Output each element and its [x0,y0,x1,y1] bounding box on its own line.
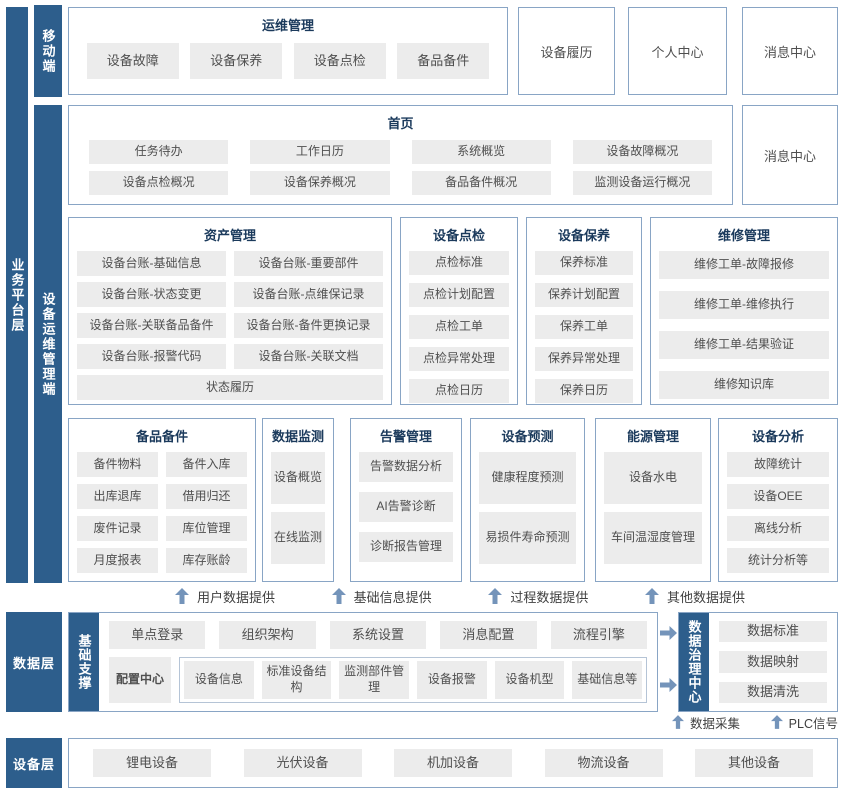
module-item: 工作日历 [250,140,389,164]
repair-items: 维修工单-故障报修 维修工单-维修执行 维修工单-结果验证 维修知识库 [651,249,837,405]
module-item: 备件物料 [77,452,158,477]
asset-items-grid: 设备台账-基础信息 设备台账-重要部件 设备台账-状态变更 设备台账-点维保记录… [69,249,391,406]
module-item: 保养标准 [535,251,633,275]
module-item: 易损件寿命预测 [479,512,576,564]
section-ops-management: 运维管理 设备故障 设备保养 设备点检 备品备件 [68,7,508,95]
module-item: 备品备件概况 [412,171,551,195]
module-item: 告警数据分析 [359,452,453,482]
right-arrow-icon [660,678,677,692]
right-arrow-icon [660,626,677,640]
module-item: 维修知识库 [659,371,829,399]
flow-label-data-acquisition: 数据采集 [672,711,740,733]
module-item: 点检异常处理 [409,347,509,371]
rail-device-layer: 设备层 [6,738,62,788]
section-energy-management: 能源管理 设备水电 车间温湿度管理 [595,418,711,582]
section-alarm-management: 告警管理 告警数据分析 AI告警诊断 诊断报告管理 [350,418,462,582]
module-item: 设备机型 [495,661,565,699]
module-item: 设备水电 [604,452,702,504]
section-title: 资产管理 [69,218,391,249]
section-equipment-maintenance: 设备保养 保养标准 保养计划配置 保养工单 保养异常处理 保养日历 [526,217,642,405]
module-item: 消息配置 [440,621,536,649]
section-device-layer: 锂电设备 光伏设备 机加设备 物流设备 其他设备 [68,738,838,788]
module-item: 废件记录 [77,516,158,541]
up-arrow-icon [175,588,189,604]
module-item: 保养日历 [535,379,633,403]
module-item: 保养计划配置 [535,283,633,307]
module-item: 点检日历 [409,379,509,403]
rail-business-platform-layer: 业务平台层 [6,7,28,583]
section-title: 首页 [69,106,732,137]
up-arrow-icon [771,715,783,729]
module-item: 维修工单-结果验证 [659,331,829,359]
section-title: 数据监测 [263,419,333,450]
module-item: AI告警诊断 [359,492,453,522]
module-item: 维修工单-维修执行 [659,291,829,319]
module-item: 库存账龄 [166,548,247,573]
section-title: 备品备件 [69,419,255,450]
section-data-layer: 基础支撑 单点登录 组织架构 系统设置 消息配置 流程引擎 配置中心 设备信息 … [68,612,658,712]
module-item: 设备点检 [294,43,386,79]
module-item: 任务待办 [89,140,228,164]
flow-label-process-data: 过程数据提供 [488,585,588,607]
module-item: 光伏设备 [244,749,362,777]
module-item: 设备台账-关联文档 [234,344,383,369]
section-spare-parts: 备品备件 备件物料 备件入库 出库退库 借用归还 废件记录 库位管理 月度报表 … [68,418,256,582]
config-items-panel: 设备信息 标准设备结构 监测部件管理 设备报警 设备机型 基础信息等 [179,657,647,703]
module-item: 基础信息等 [572,661,642,699]
module-item: 设备台账-关联备品备件 [77,313,226,338]
module-item: 备品备件 [397,43,489,79]
config-center-row: 配置中心 设备信息 标准设备结构 监测部件管理 设备报警 设备机型 基础信息等 [109,657,647,703]
rail-data-governance: 数据治理中心 [679,613,709,711]
module-item: 设备台账-重要部件 [234,251,383,276]
flow-label-basic-info: 基础信息提供 [332,585,432,607]
monitor-items: 设备概览 在线监测 [263,450,333,570]
flow-label-text: PLC信号 [789,713,838,732]
module-item: 离线分析 [727,516,829,541]
section-title: 设备分析 [719,419,837,450]
module-item: 设备信息 [184,661,254,699]
module-item: 备件入库 [166,452,247,477]
box-equipment-history: 设备履历 [518,7,615,95]
up-arrow-icon [645,588,659,604]
module-item: 设备故障 [87,43,179,79]
data-flow-row: 用户数据提供 基础信息提供 过程数据提供 其他数据提供 [175,585,745,607]
module-item: 组织架构 [219,621,315,649]
box-personal-center: 个人中心 [628,7,727,95]
acquisition-flow-row: 数据采集 PLC信号 [672,711,838,733]
flow-label-user-data: 用户数据提供 [175,585,275,607]
module-item: 设备台账-基础信息 [77,251,226,276]
section-data-monitoring: 数据监测 设备概览 在线监测 [262,418,334,582]
module-item: 点检标准 [409,251,509,275]
section-equipment-analysis: 设备分析 故障统计 设备OEE 离线分析 统计分析等 [718,418,838,582]
module-item: 监测部件管理 [339,661,409,699]
flow-label-text: 用户数据提供 [197,587,275,606]
module-item: 数据映射 [719,651,827,672]
module-item: 数据清洗 [719,682,827,703]
maintenance-items: 保养标准 保养计划配置 保养工单 保养异常处理 保养日历 [527,249,641,409]
data-layer-content: 单点登录 组织架构 系统设置 消息配置 流程引擎 配置中心 设备信息 标准设备结… [99,613,657,711]
module-item: 借用归还 [166,484,247,509]
section-title: 设备点检 [401,218,517,249]
rail-base-support: 基础支撑 [69,613,99,711]
module-item: 机加设备 [394,749,512,777]
section-repair-management: 维修管理 维修工单-故障报修 维修工单-维修执行 维修工单-结果验证 维修知识库 [650,217,838,405]
section-home: 首页 任务待办 工作日历 系统概览 设备故障概况 设备点检概况 设备保养概况 备… [68,105,733,205]
module-item: 设备台账-报警代码 [77,344,226,369]
module-item: 故障统计 [727,452,829,477]
section-title: 运维管理 [69,8,507,39]
analysis-items: 故障统计 设备OEE 离线分析 统计分析等 [719,450,837,579]
module-item: 其他设备 [695,749,813,777]
module-item: 设备保养 [190,43,282,79]
module-item: 点检工单 [409,315,509,339]
section-title: 能源管理 [596,419,710,450]
module-item: 设备OEE [727,484,829,509]
module-item: 设备台账-备件更换记录 [234,313,383,338]
module-item: 维修工单-故障报修 [659,251,829,279]
module-item: 库位管理 [166,516,247,541]
section-equipment-prediction: 设备预测 健康程度预测 易损件寿命预测 [470,418,585,582]
module-item: 锂电设备 [93,749,211,777]
module-item: 出库退库 [77,484,158,509]
energy-items: 设备水电 车间温湿度管理 [596,450,710,570]
flow-label-text: 数据采集 [690,713,740,732]
module-item: 设备台账-点维保记录 [234,282,383,307]
section-equipment-inspection: 设备点检 点检标准 点检计划配置 点检工单 点检异常处理 点检日历 [400,217,518,405]
box-message-center-mobile: 消息中心 [742,7,838,95]
module-item: 系统概览 [412,140,551,164]
up-arrow-icon [332,588,346,604]
section-title: 设备预测 [471,419,584,450]
module-item: 监测设备运行概况 [573,171,712,195]
up-arrow-icon [488,588,502,604]
flow-label-plc-signal: PLC信号 [771,711,838,733]
config-center-label: 配置中心 [109,657,171,703]
module-item: 统计分析等 [727,548,829,573]
module-item: 状态履历 [77,375,383,400]
module-item: 设备保养概况 [250,171,389,195]
governance-items: 数据标准 数据映射 数据清洗 [709,613,837,711]
rail-mobile-client: 移动端 [34,5,62,97]
home-items-grid: 任务待办 工作日历 系统概览 设备故障概况 设备点检概况 设备保养概况 备品备件… [69,137,732,198]
module-item: 数据标准 [719,621,827,642]
module-item: 点检计划配置 [409,283,509,307]
section-title: 告警管理 [351,419,461,450]
flow-label-other-data: 其他数据提供 [645,585,745,607]
module-item: 保养工单 [535,315,633,339]
module-item: 健康程度预测 [479,452,576,504]
module-item: 设备点检概况 [89,171,228,195]
box-message-center-web: 消息中心 [742,105,838,205]
flow-label-text: 过程数据提供 [510,587,588,606]
module-item: 在线监测 [271,512,325,564]
module-item: 设备台账-状态变更 [77,282,226,307]
module-item: 月度报表 [77,548,158,573]
section-asset-management: 资产管理 设备台账-基础信息 设备台账-重要部件 设备台账-状态变更 设备台账-… [68,217,392,405]
module-item: 流程引擎 [551,621,647,649]
base-support-row: 单点登录 组织架构 系统设置 消息配置 流程引擎 [109,621,647,649]
predict-items: 健康程度预测 易损件寿命预测 [471,450,584,570]
rail-equipment-ops-client: 设备运维管理端 [34,105,62,583]
module-item: 单点登录 [109,621,205,649]
module-item: 诊断报告管理 [359,532,453,562]
module-item: 系统设置 [330,621,426,649]
module-item: 标准设备结构 [262,661,332,699]
section-title: 设备保养 [527,218,641,249]
inspection-items: 点检标准 点检计划配置 点检工单 点检异常处理 点检日历 [401,249,517,409]
module-item: 车间温湿度管理 [604,512,702,564]
alarm-items: 告警数据分析 AI告警诊断 诊断报告管理 [351,450,461,568]
module-item: 设备故障概况 [573,140,712,164]
module-item: 设备概览 [271,452,325,504]
equipment-management-architecture-diagram: 业务平台层 移动端 设备运维管理端 运维管理 设备故障 设备保养 设备点检 备品… [0,0,841,794]
flow-label-text: 基础信息提供 [354,587,432,606]
up-arrow-icon [672,715,684,729]
ops-items-row: 设备故障 设备保养 设备点检 备品备件 [69,39,507,83]
module-item: 物流设备 [545,749,663,777]
module-item: 设备报警 [417,661,487,699]
flow-label-text: 其他数据提供 [667,587,745,606]
rail-data-layer: 数据层 [6,612,62,712]
section-data-governance-center: 数据治理中心 数据标准 数据映射 数据清洗 [678,612,838,712]
section-title: 维修管理 [651,218,837,249]
spare-items-grid: 备件物料 备件入库 出库退库 借用归还 废件记录 库位管理 月度报表 库存账龄 [69,450,255,579]
module-item: 保养异常处理 [535,347,633,371]
